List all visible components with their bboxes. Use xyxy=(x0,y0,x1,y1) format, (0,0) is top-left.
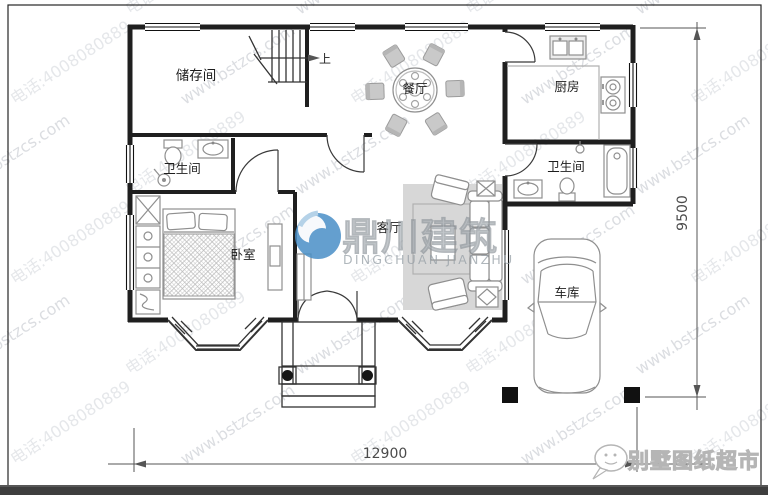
watermark-text: 电话:4008080889 xyxy=(687,17,768,109)
hall-cabinet xyxy=(297,254,311,300)
toilet xyxy=(559,178,575,201)
kitchen-sink xyxy=(550,36,586,59)
sink xyxy=(514,180,542,198)
bottom-bar-highlight xyxy=(0,485,768,487)
room-label-kitchen: 厨房 xyxy=(554,79,579,94)
room-label-bedroom: 卧室 xyxy=(230,247,255,262)
window xyxy=(127,215,134,290)
watermark-text: 电话:4008080889 xyxy=(7,197,134,289)
dining-chair xyxy=(425,112,448,136)
watermark-text: 电话:4008080889 xyxy=(122,107,249,199)
dining-chair xyxy=(446,80,465,97)
watermark-text: www.bstzcs.com xyxy=(0,290,73,378)
room-label-bath-left: 卫生间 xyxy=(163,161,201,176)
brand-name-en: DINGCHUAN JIANZHU xyxy=(343,252,514,267)
wardrobe xyxy=(136,196,160,314)
brand-logo-icon xyxy=(295,213,341,259)
window xyxy=(545,24,600,31)
garage xyxy=(502,239,640,403)
dresser xyxy=(268,224,282,290)
floorplan-drawing: www.bstzcs.com电话:4008080889www.bstzcs.co… xyxy=(0,0,768,495)
bay-window-living xyxy=(398,317,492,350)
room-label-dining: 餐厅 xyxy=(402,81,427,96)
watermark-text: 电话:4008080889 xyxy=(7,377,134,469)
garage-column xyxy=(624,387,640,403)
side-table xyxy=(476,287,498,307)
watermark-text: www.bstzcs.com xyxy=(632,290,753,378)
watermark-text: www.bstzcs.com xyxy=(0,0,73,18)
room-label-garage: 车库 xyxy=(554,285,579,300)
watermark-text: www.bstzcs.com xyxy=(177,20,298,108)
dimension-height-label: 9500 xyxy=(675,195,691,231)
floorplan-page: www.bstzcs.com电话:4008080889www.bstzcs.co… xyxy=(0,0,768,495)
bedroom-furniture xyxy=(136,196,282,314)
car xyxy=(528,239,606,393)
dining-chair xyxy=(366,83,385,100)
side-table xyxy=(477,181,495,196)
window xyxy=(405,24,468,31)
watermark-text: 电话:4008080889 xyxy=(7,17,134,109)
garage-column xyxy=(502,387,518,403)
stairs-up-label: 上 xyxy=(319,52,331,66)
watermark-text: 电话:4008080889 xyxy=(687,197,768,289)
porch-column xyxy=(282,370,293,381)
bathtub xyxy=(604,145,630,197)
watermark-text: www.bstzcs.com xyxy=(632,0,753,18)
porch-column xyxy=(362,370,373,381)
room-label-bath-right: 卫生间 xyxy=(547,159,585,174)
bottom-bar xyxy=(0,487,768,495)
kitchen-stove xyxy=(601,77,625,113)
shop-name: 别墅图纸超市 xyxy=(627,449,760,473)
kitchen-door xyxy=(505,32,535,62)
shop-logo: 别墅图纸超市 xyxy=(593,445,760,479)
brand-logo: 鼎川建筑 DINGCHUAN JIANZHU xyxy=(295,213,514,267)
watermark-text: 电话:4008080889 xyxy=(122,0,249,18)
bedroom-door xyxy=(236,150,278,192)
dimension-width-label: 12900 xyxy=(363,446,408,462)
window xyxy=(630,63,637,107)
window xyxy=(145,24,200,31)
watermark-text: www.bstzcs.com xyxy=(292,290,413,378)
watermark-text: 电话:4008080889 xyxy=(462,0,589,18)
watermark-text: www.bstzcs.com xyxy=(177,380,298,468)
watermark-text: www.bstzcs.com xyxy=(0,110,73,198)
window xyxy=(127,145,134,183)
watermark-text: www.bstzcs.com xyxy=(292,0,413,18)
shop-logo-icon xyxy=(593,445,627,479)
window xyxy=(310,24,355,31)
watermark-text: www.bstzcs.com xyxy=(632,110,753,198)
bed xyxy=(163,209,235,299)
sink xyxy=(198,140,228,158)
room-label-storage: 储存间 xyxy=(176,68,217,84)
